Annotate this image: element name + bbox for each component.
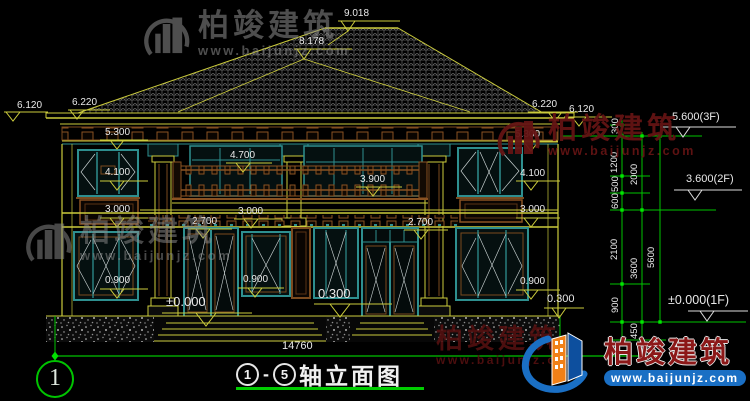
dim-terrace: 0.300 bbox=[318, 288, 351, 299]
dim-eave-right: 6.220 bbox=[532, 99, 557, 110]
brand-logo: 柏竣建筑 www.baijunjz.com bbox=[514, 327, 746, 397]
dim-ridge2: 8.178 bbox=[299, 36, 324, 47]
title-axis-from: 1 bbox=[236, 363, 259, 386]
dim-panel-center: 3.000 bbox=[238, 206, 263, 217]
brand-logo-icon bbox=[514, 327, 602, 397]
floor-level-markers bbox=[660, 127, 748, 321]
dim-fascia-right: 5.300 bbox=[515, 129, 540, 140]
dimension-ticks bbox=[620, 123, 661, 341]
plinth-and-steps bbox=[46, 316, 560, 342]
title-text: 轴立面图 bbox=[299, 357, 403, 391]
drawing-title: 1 - 5 轴立面图 bbox=[236, 357, 403, 391]
title-underline bbox=[236, 387, 424, 390]
chain-5600: 5600 bbox=[646, 247, 657, 268]
dim-band-left: 2.700 bbox=[192, 216, 217, 227]
dim-sill-center: 0.900 bbox=[243, 274, 268, 285]
dim-eave-left-outer: 6.120 bbox=[17, 100, 42, 111]
chain-900: 900 bbox=[610, 297, 621, 313]
chain-3600: 3600 bbox=[629, 258, 640, 279]
level-floor2: 3.600(2F) bbox=[686, 174, 734, 185]
dim-eave-right-outer: 6.120 bbox=[569, 104, 594, 115]
brand-url: www.baijunjz.com bbox=[604, 370, 746, 386]
chain-600: 600 bbox=[610, 193, 621, 209]
dim-win2-left: 4.100 bbox=[105, 167, 130, 178]
dim-sill-left: 0.900 bbox=[105, 275, 130, 286]
level-floor1: ±0.000(1F) bbox=[668, 295, 729, 306]
dim-total-width: 14760 bbox=[282, 341, 313, 352]
dim-plinth-right: 0.300 bbox=[547, 294, 575, 305]
dim-win2-right: 4.100 bbox=[520, 168, 545, 179]
dim-sill-right: 0.900 bbox=[520, 276, 545, 287]
dim-eave-left: 6.220 bbox=[72, 97, 97, 108]
title-dash: - bbox=[263, 364, 269, 385]
dim-fascia-left: 5.300 bbox=[105, 127, 130, 138]
level-floor3: 5.600(3F) bbox=[672, 112, 720, 123]
dim-ridge: 9.018 bbox=[344, 8, 369, 19]
dim-ground: ±0.000 bbox=[166, 296, 206, 307]
dim-panel-right: 3.000 bbox=[520, 204, 545, 215]
cad-elevation-canvas: 9.018 8.178 6.120 6.220 6.220 6.120 5.30… bbox=[0, 0, 750, 401]
dim-band-right: 2.700 bbox=[408, 217, 433, 228]
chain-2000: 2000 bbox=[629, 164, 640, 185]
chain-300: 300 bbox=[610, 118, 621, 134]
axis-bubble: 1 bbox=[36, 360, 74, 398]
first-floor-openings bbox=[74, 228, 528, 318]
dim-balcony-top: 4.700 bbox=[230, 150, 255, 161]
brand-name: 柏竣建筑 bbox=[604, 338, 746, 370]
dim-balcony-mid: 3.900 bbox=[360, 174, 385, 185]
chain-2100: 2100 bbox=[609, 239, 620, 260]
chain-500: 500 bbox=[610, 176, 621, 192]
chain-1200: 1200 bbox=[609, 152, 620, 173]
title-axis-to: 5 bbox=[273, 363, 296, 386]
dim-panel-left: 3.000 bbox=[105, 204, 130, 215]
